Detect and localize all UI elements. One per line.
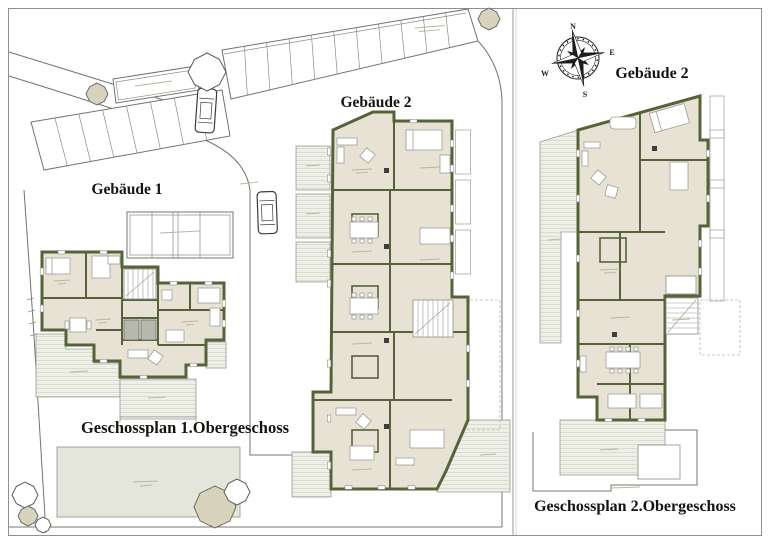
floorplan-document: N E S W bbox=[0, 0, 770, 544]
compass-south-label: S bbox=[583, 90, 588, 99]
site-plan-drawing: N E S W bbox=[0, 0, 770, 544]
balconies-east bbox=[456, 130, 471, 274]
compass-north-label: N bbox=[570, 22, 576, 31]
building1-title: Gebäude 1 bbox=[91, 181, 162, 198]
car-icon-west bbox=[195, 88, 217, 133]
car-icon-courtyard bbox=[257, 191, 277, 234]
floor1-caption: Geschossplan 1.Obergeschoss bbox=[81, 418, 290, 437]
compass-east-label: E bbox=[609, 48, 614, 57]
building2-upper-title: Gebäude 2 bbox=[615, 65, 688, 82]
building2-site-title: Gebäude 2 bbox=[340, 94, 411, 111]
floor2-caption: Geschossplan 2.Obergeschoss bbox=[534, 498, 736, 515]
compass-west-label: W bbox=[541, 69, 549, 78]
garage-row bbox=[127, 212, 233, 258]
